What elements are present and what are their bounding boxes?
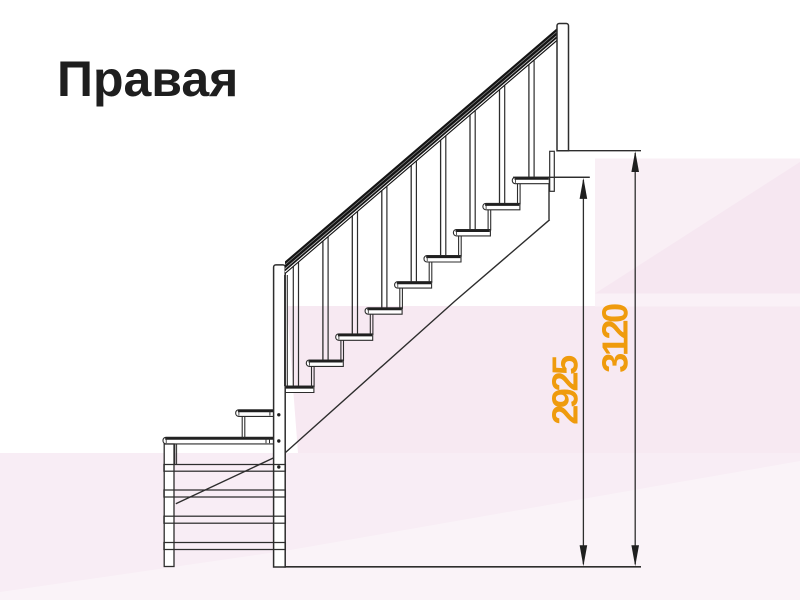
svg-text:Правая: Правая bbox=[57, 51, 238, 107]
svg-text:3120: 3120 bbox=[595, 304, 636, 373]
svg-text:2925: 2925 bbox=[545, 355, 586, 425]
